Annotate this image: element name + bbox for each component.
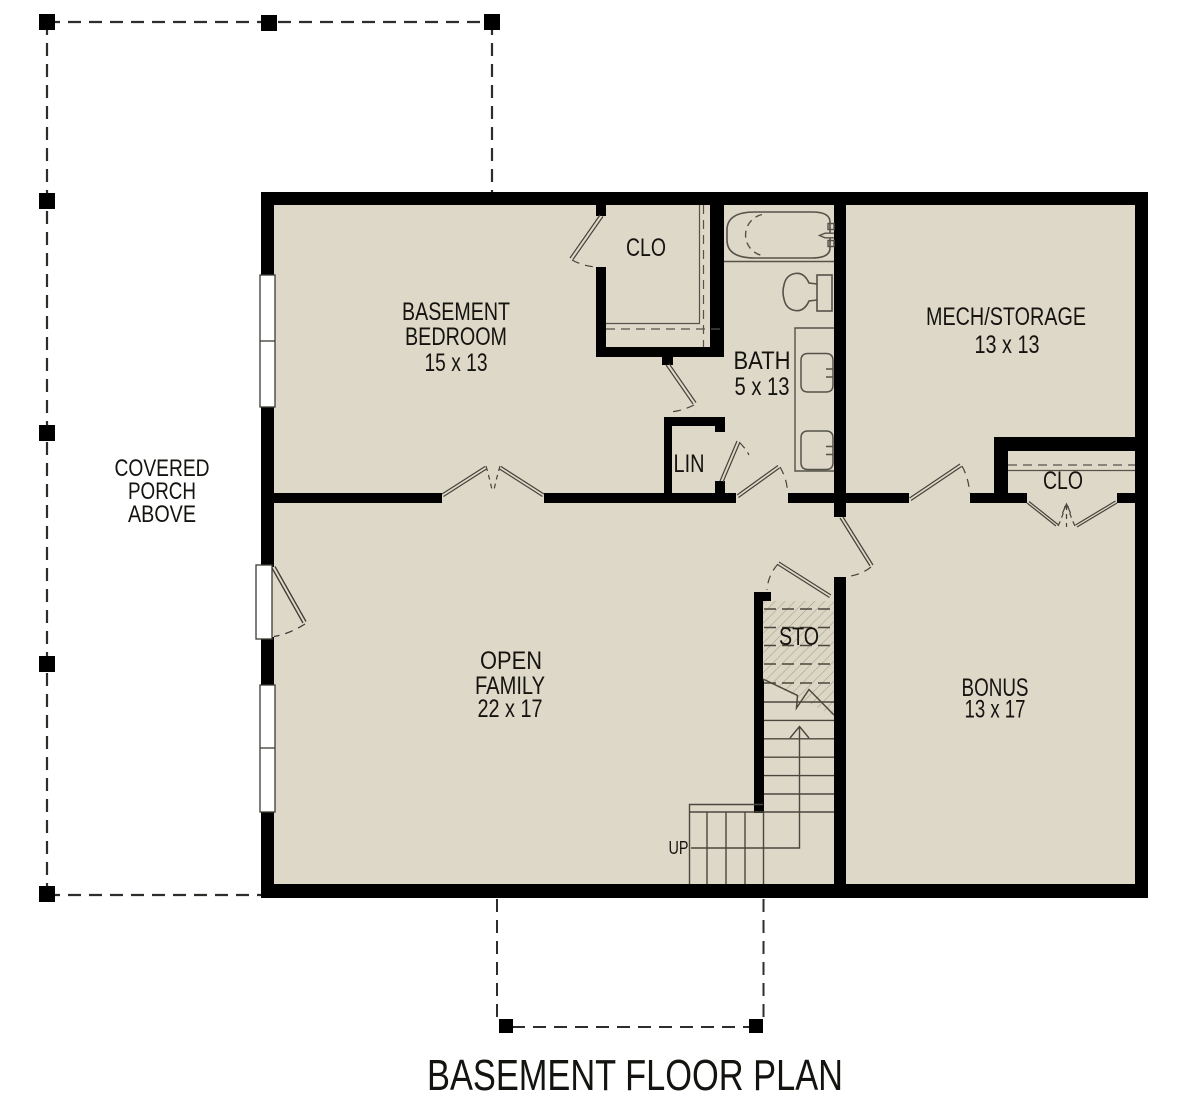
svg-text:BASEMENT FLOOR PLAN: BASEMENT FLOOR PLAN bbox=[427, 1051, 843, 1100]
svg-text:MECH/STORAGE: MECH/STORAGE bbox=[926, 303, 1086, 331]
svg-text:UP: UP bbox=[669, 838, 689, 858]
svg-text:BATH: BATH bbox=[734, 347, 791, 375]
svg-text:15 x 13: 15 x 13 bbox=[425, 349, 488, 377]
svg-text:5 x 13: 5 x 13 bbox=[735, 373, 790, 401]
svg-text:13 x 17: 13 x 17 bbox=[965, 696, 1026, 724]
svg-text:OPEN: OPEN bbox=[480, 647, 542, 675]
svg-text:BEDROOM: BEDROOM bbox=[405, 323, 507, 351]
svg-text:BASEMENT: BASEMENT bbox=[402, 298, 510, 326]
svg-text:ABOVE: ABOVE bbox=[128, 501, 196, 528]
svg-text:CLO: CLO bbox=[626, 234, 666, 262]
svg-text:STO: STO bbox=[779, 623, 819, 651]
svg-text:LIN: LIN bbox=[674, 450, 705, 478]
svg-text:22 x 17: 22 x 17 bbox=[478, 695, 543, 723]
svg-text:CLO: CLO bbox=[1043, 467, 1083, 495]
svg-text:13 x 13: 13 x 13 bbox=[975, 331, 1040, 359]
